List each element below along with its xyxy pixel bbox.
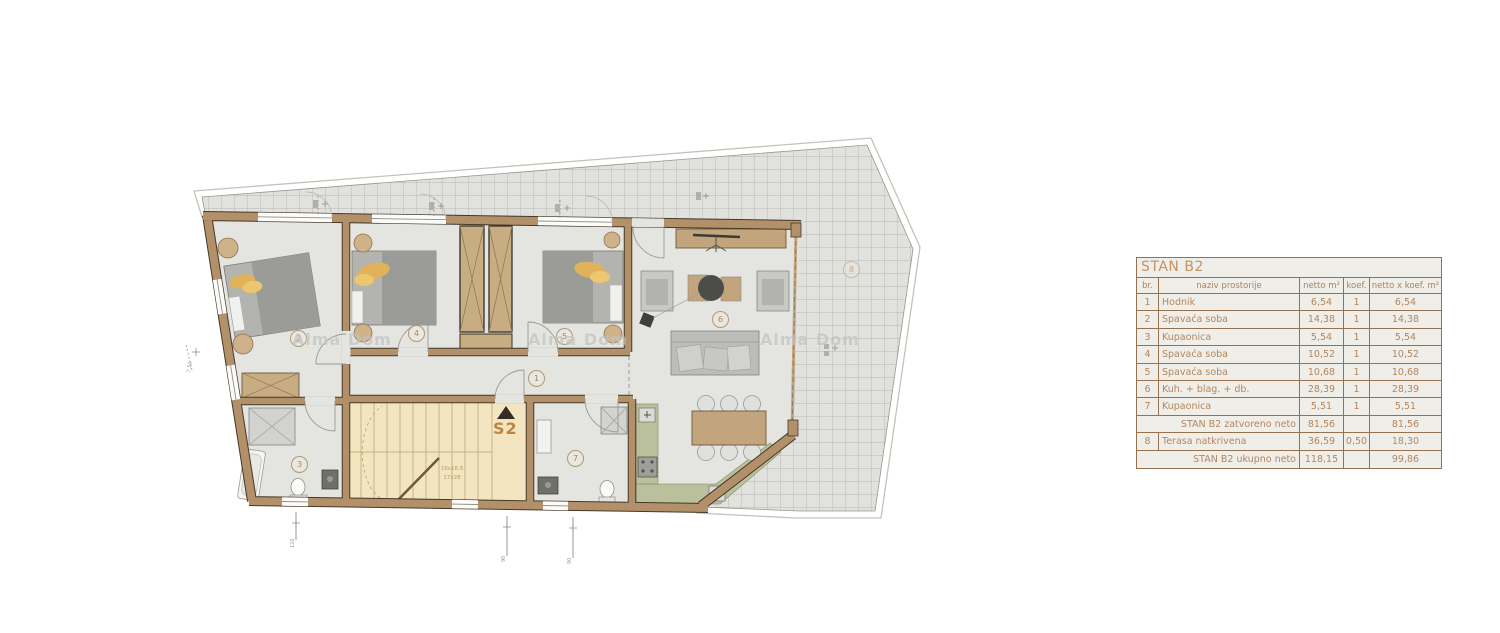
header-koef: koef. [1344,278,1370,294]
cell-name: Kupaonica [1159,329,1300,346]
bed-icon [224,253,321,340]
cell-total: 10,68 [1370,364,1441,381]
area-table-header: br. naziv prostorije netto m² koef. nett… [1137,278,1441,294]
cell-koef: 1 [1344,346,1370,363]
cell-netto: 28,39 [1300,381,1344,398]
cell-total: 81,56 [1370,416,1441,433]
cell-koef [1344,451,1370,468]
table-row: 4 Spavaća soba 10,52 1 10,52 [1137,346,1441,363]
sofa-icon [671,331,759,375]
stair-direction-icon [497,406,515,419]
header-name: naziv prostorije [1159,278,1300,294]
cell-total: 5,51 [1370,398,1441,415]
cell-koef: 1 [1344,329,1370,346]
cell-koef [1344,416,1370,433]
bed-icon [543,251,623,323]
cell-netto: 36,59 [1300,433,1344,450]
cell-total: 99,86 [1370,451,1441,468]
cell-br: 7 [1137,398,1159,415]
table-summary-row: STAN B2 ukupno neto 118,15 99,86 [1137,451,1441,468]
room-label-hallway: 1 [528,370,545,387]
cell-netto: 10,52 [1300,346,1344,363]
table-row: 6 Kuh. + blag. + db. 28,39 1 28,39 [1137,381,1441,398]
cell-br: 5 [1137,364,1159,381]
table-row: 1 Hodnik 6,54 1 6,54 [1137,294,1441,311]
cell-br: 4 [1137,346,1159,363]
table-summary-row: STAN B2 zatvoreno neto 81,56 81,56 [1137,416,1441,433]
cell-name: Kupaonica [1159,398,1300,415]
cell-netto: 14,38 [1300,311,1344,328]
header-br: br. [1137,278,1159,294]
watermark: Alma Dom [760,330,860,349]
coffee-table-icon [698,275,724,301]
dining-set-icon [692,396,766,461]
cell-total: 18,30 [1370,433,1441,450]
header-netto: netto m² [1300,278,1344,294]
cell-name: Terasa natkrivena [1159,433,1300,450]
stair-note-line1: 16x18,8 [424,465,480,474]
cell-name: Spavaća soba [1159,346,1300,363]
cell-name: Spavaća soba [1159,364,1300,381]
tv-cabinet-icon [676,229,786,248]
room-label-bedroom4: 4 [408,325,425,342]
watermark: Alma Dom [292,330,392,349]
cell-br: 8 [1137,433,1159,450]
table-row: 5 Spavaća soba 10,68 1 10,68 [1137,364,1441,381]
cabinet-icon [537,420,551,453]
stair-note: 16x18,8 17x28 [424,465,480,484]
table-row: 2 Spavaća soba 14,38 1 14,38 [1137,311,1441,328]
dimension-label: 120 [290,538,296,548]
bed-icon [352,251,436,325]
stair-note-line2: 17x28 [424,474,480,483]
cell-netto: 6,54 [1300,294,1344,311]
cell-koef: 0,50 [1344,433,1370,450]
cell-koef: 1 [1344,311,1370,328]
cell-total: 10,52 [1370,346,1441,363]
toilet-icon [291,479,305,496]
cell-koef: 1 [1344,294,1370,311]
stair-label: S2 [493,419,518,438]
cell-name: STAN B2 ukupno neto [1137,451,1300,468]
dimension-label: 90 [501,556,507,562]
cell-total: 6,54 [1370,294,1441,311]
area-table: STAN B2 br. naziv prostorije netto m² ko… [1136,257,1442,469]
cell-koef: 1 [1344,381,1370,398]
stove-icon [638,457,657,477]
dimension-label: 90 [567,558,573,564]
room-label-bath3: 3 [291,456,308,473]
cell-br: 6 [1137,381,1159,398]
cell-netto: 5,54 [1300,329,1344,346]
cell-netto: 5,51 [1300,398,1344,415]
cell-name: STAN B2 zatvoreno neto [1137,416,1300,433]
cell-netto: 118,15 [1300,451,1344,468]
cell-total: 5,54 [1370,329,1441,346]
cell-koef: 1 [1344,364,1370,381]
cell-br: 1 [1137,294,1159,311]
table-row: 3 Kupaonica 5,54 1 5,54 [1137,329,1441,346]
watermark: Alma Dom [528,330,628,349]
cell-total: 28,39 [1370,381,1441,398]
cell-name: Hodnik [1159,294,1300,311]
table-row: 7 Kupaonica 5,51 1 5,51 [1137,398,1441,415]
room-label-terrace: 8 [843,261,860,278]
cell-netto: 10,68 [1300,364,1344,381]
table-row: 8 Terasa natkrivena 36,59 0,50 18,30 [1137,433,1441,450]
cell-netto: 81,56 [1300,416,1344,433]
header-total: netto x koef. m² [1370,278,1441,294]
cell-br: 3 [1137,329,1159,346]
cell-koef: 1 [1344,398,1370,415]
room-label-living: 6 [712,311,729,328]
room-label-bath7: 7 [567,450,584,467]
cell-total: 14,38 [1370,311,1441,328]
cell-name: Spavaća soba [1159,311,1300,328]
cell-name: Kuh. + blag. + db. [1159,381,1300,398]
toilet-icon [600,481,614,498]
area-table-title: STAN B2 [1137,258,1441,278]
floorplan-page: 1 2 3 4 5 6 7 8 S2 16x18,8 17x28 Alma Do… [0,0,1500,633]
cell-br: 2 [1137,311,1159,328]
